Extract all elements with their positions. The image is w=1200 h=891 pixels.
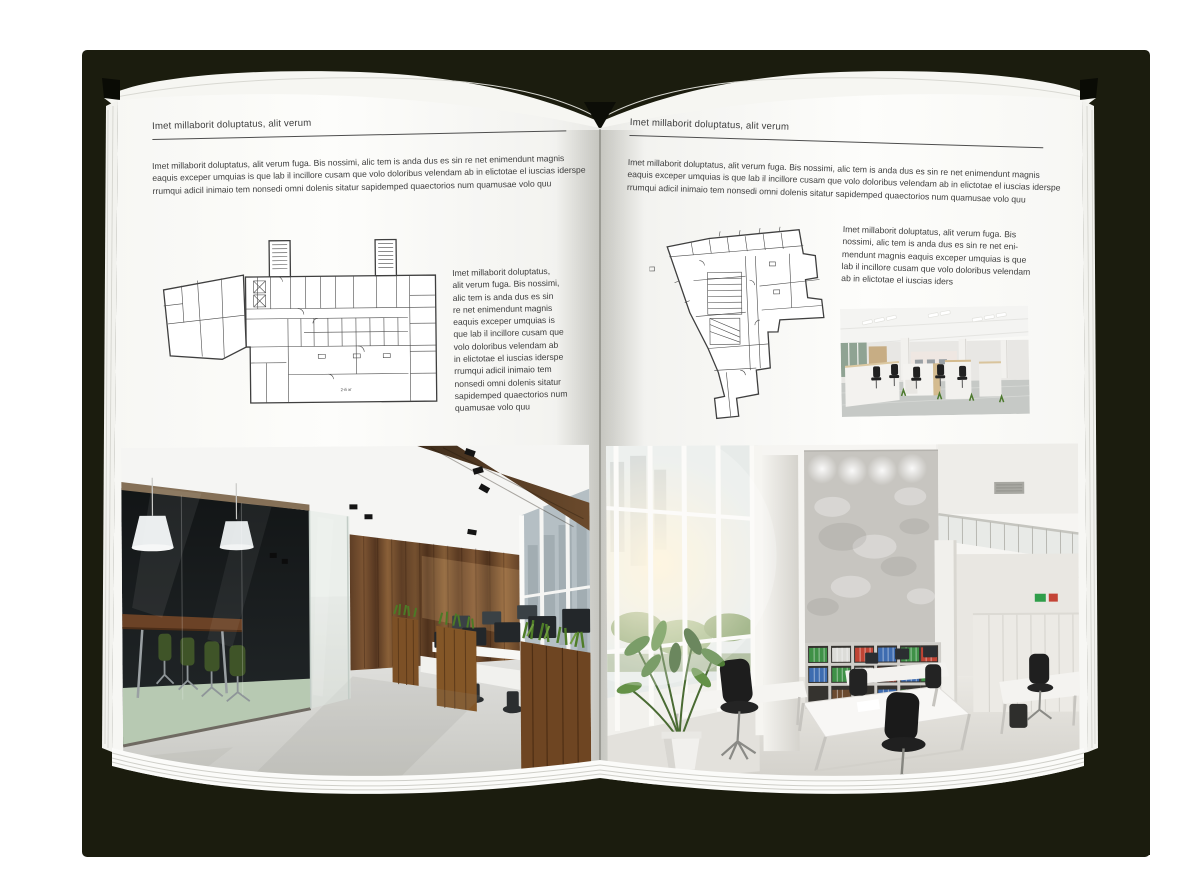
- office-photo-small: [840, 306, 1030, 417]
- brochure-mockup-scene: Imet millaborit doluptatus, alit verum I…: [0, 0, 1200, 891]
- floor-plan-left-label: 2-й эт: [341, 387, 352, 392]
- floor-plan-left: 2-й эт: [157, 233, 445, 414]
- concrete-wall: [804, 450, 939, 643]
- left-page-side-text: Imet millaborit doluptatus, alit verum f…: [452, 264, 587, 414]
- office-photo-right: [606, 444, 1080, 785]
- right-page-side-text: Imet millaborit doluptatus, alit verum f…: [841, 223, 1048, 291]
- glass-meeting-room: [121, 477, 311, 746]
- office-photo-left: [121, 445, 591, 786]
- floor-plan-right: [649, 219, 837, 421]
